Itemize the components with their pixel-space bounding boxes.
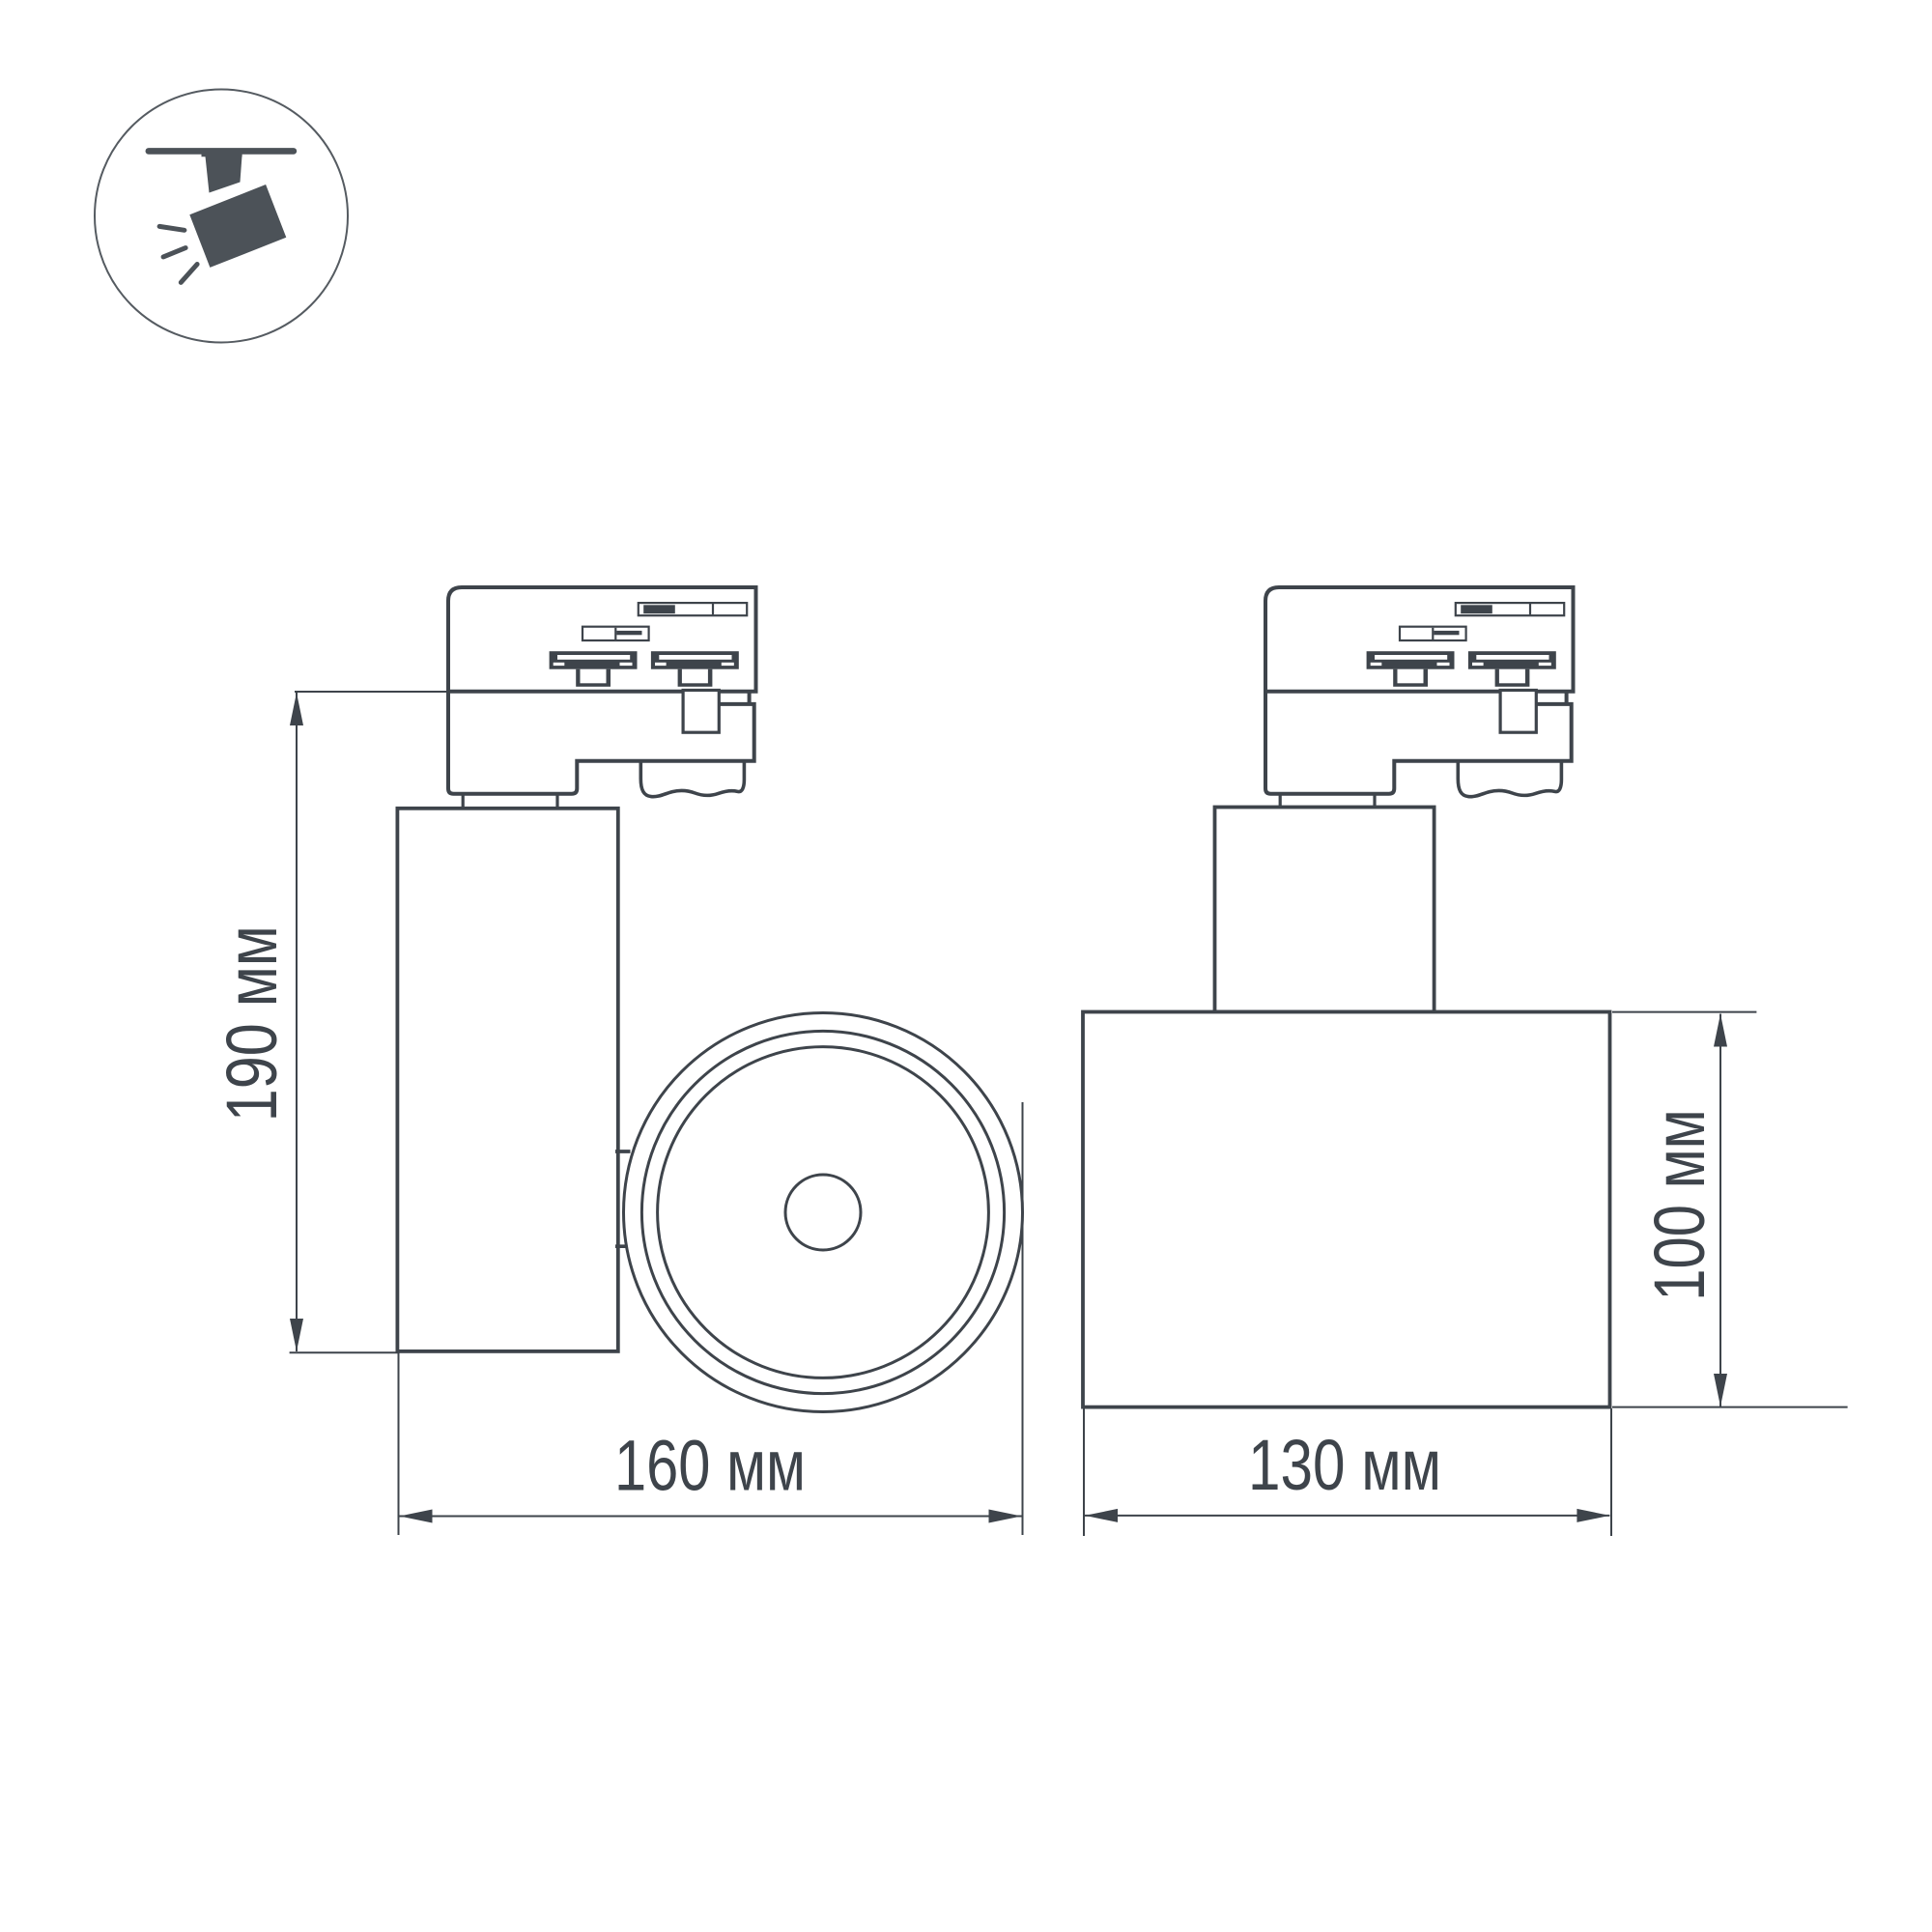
svg-text:130 мм: 130 мм xyxy=(1248,1425,1441,1505)
svg-text:100 мм: 100 мм xyxy=(1639,1109,1719,1301)
svg-text:160 мм: 160 мм xyxy=(614,1425,806,1505)
svg-text:190 мм: 190 мм xyxy=(212,925,292,1122)
